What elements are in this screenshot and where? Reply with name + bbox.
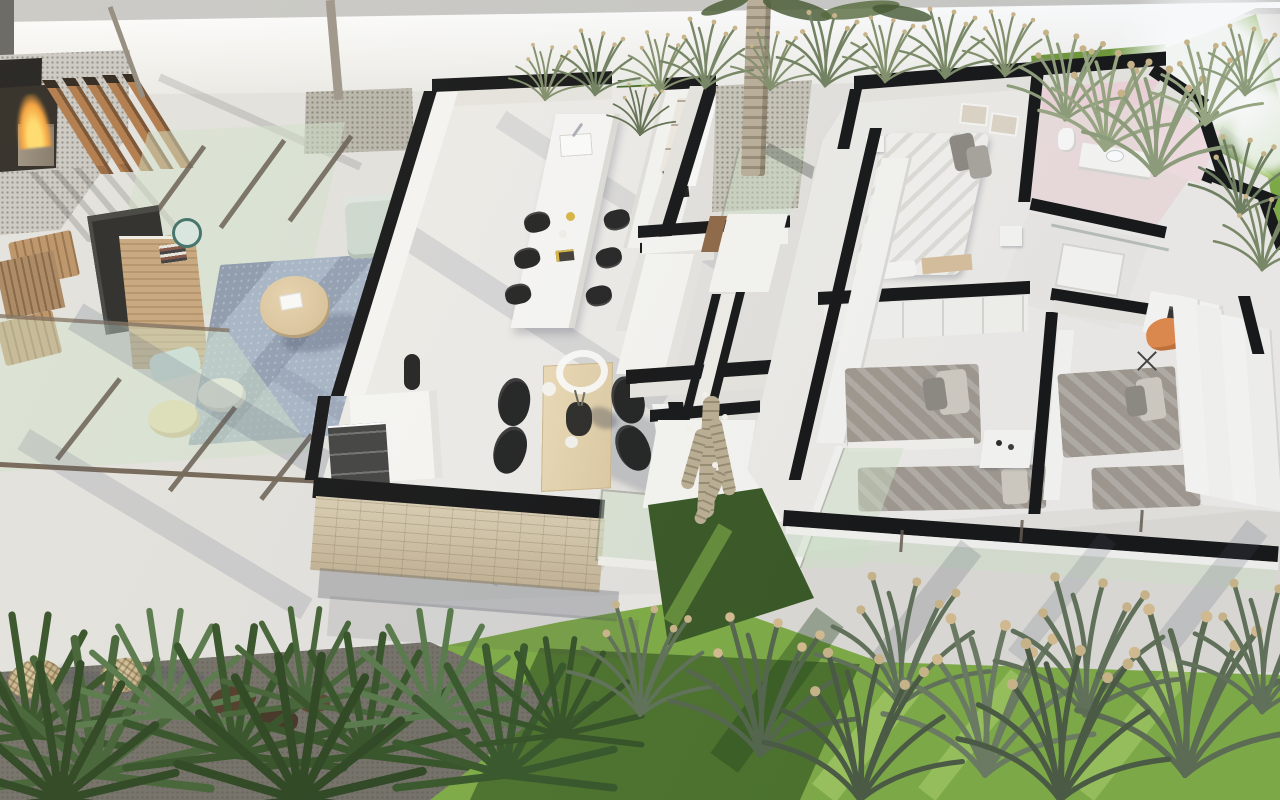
floor-plan-render xyxy=(0,0,1280,800)
plants-layer xyxy=(0,0,1280,800)
fence-grasses xyxy=(509,7,1280,270)
dry-grass-tufts xyxy=(568,572,1280,800)
foreground-palm-plants xyxy=(0,609,642,800)
